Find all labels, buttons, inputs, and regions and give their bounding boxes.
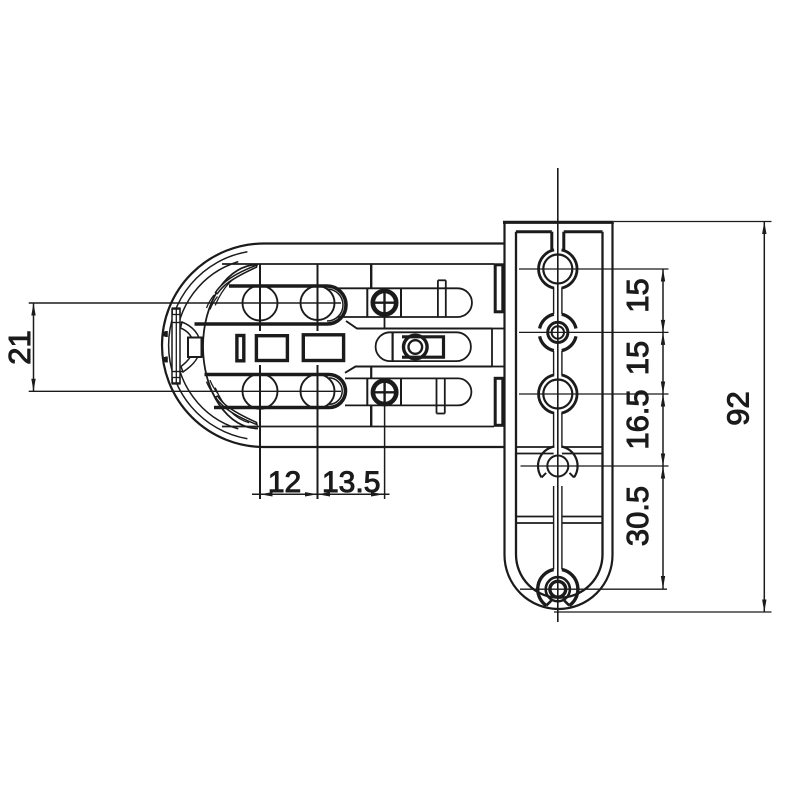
svg-text:13.5: 13.5 (322, 466, 380, 499)
svg-text:15: 15 (620, 341, 655, 375)
svg-text:16.5: 16.5 (620, 389, 655, 449)
svg-text:15: 15 (620, 278, 655, 312)
svg-text:30.5: 30.5 (620, 486, 655, 546)
svg-text:21: 21 (2, 330, 37, 364)
svg-text:92: 92 (721, 391, 756, 425)
svg-text:12: 12 (268, 466, 301, 499)
